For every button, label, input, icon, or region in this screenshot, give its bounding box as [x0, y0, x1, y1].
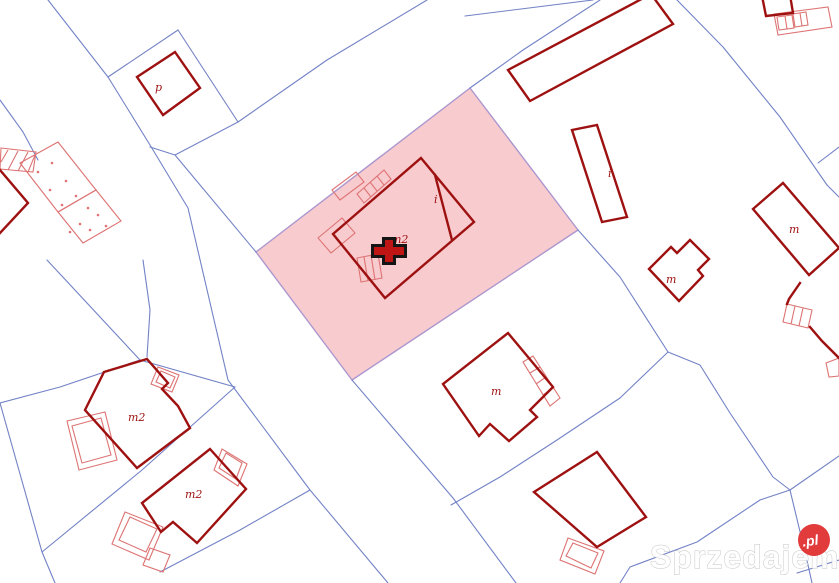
building-label: m	[666, 273, 676, 286]
terrain-dot	[51, 162, 54, 165]
highlighted-parcel-layer	[256, 88, 578, 380]
terrain-dot	[49, 189, 52, 192]
parcel-boundary-line	[175, 155, 256, 252]
terrain-dot	[97, 214, 100, 217]
building-outline	[0, 170, 28, 233]
building-outline	[508, 0, 673, 101]
building-outline	[787, 283, 800, 304]
cadastral-map-image[interactable]: pm2iimmmm2m2 Sprzedajemy .pl	[0, 0, 839, 583]
building-annex	[783, 304, 812, 328]
building-outline	[534, 452, 646, 547]
terrain-dot	[75, 195, 78, 198]
building-annex	[785, 16, 787, 29]
building-outline	[810, 327, 839, 358]
terrain-dot	[69, 231, 72, 234]
building-annex	[58, 190, 121, 243]
parcel-boundary-line	[790, 456, 839, 490]
parcel-boundary-line	[0, 403, 55, 583]
terrain-dot	[65, 180, 68, 183]
building-label: m	[789, 223, 799, 236]
building-annex	[791, 306, 795, 324]
building-annex	[774, 7, 832, 35]
parcel-boundary-line	[818, 147, 839, 163]
terrain-dot	[89, 229, 92, 232]
parcel-boundary-line	[108, 30, 178, 77]
building-label: p	[155, 81, 162, 94]
terrain-dot	[87, 207, 90, 210]
parcel-boundary-line	[0, 100, 38, 160]
building-annex	[112, 512, 163, 560]
parcel-boundary-line	[451, 352, 668, 505]
building-label: m	[491, 385, 501, 398]
building-annex	[1, 150, 8, 162]
building-annex	[20, 142, 96, 212]
terrain-dot	[79, 223, 82, 226]
building-outline	[763, 1, 793, 16]
parcel-boundary-line	[465, 0, 593, 16]
building-outline	[572, 125, 627, 222]
map-canvas: pm2iimmmm2m2 Sprzedajemy .pl	[0, 0, 839, 583]
building-annex	[800, 13, 802, 26]
highlighted-parcel	[256, 88, 578, 380]
terrain-dot	[105, 225, 108, 228]
terrain-dot	[37, 171, 40, 174]
building-label: m2	[128, 411, 145, 424]
building-outline	[137, 52, 200, 115]
building-annex	[826, 358, 839, 377]
building-label: m2	[185, 488, 202, 501]
building-outline	[649, 240, 709, 301]
watermark: Sprzedajemy .pl	[650, 522, 839, 575]
parcel-boundary-line	[47, 260, 235, 387]
parcel-boundary-line	[143, 260, 150, 357]
building-annex	[799, 308, 803, 326]
parcel-boundary-line	[668, 352, 790, 490]
building-annex	[8, 151, 18, 170]
building-label: i	[608, 167, 612, 180]
building-annex	[72, 418, 111, 463]
terrain-dot	[61, 204, 64, 207]
parcel-boundary-line	[578, 230, 668, 352]
building-label: i	[434, 193, 438, 206]
parcel-boundary-line	[178, 30, 238, 122]
